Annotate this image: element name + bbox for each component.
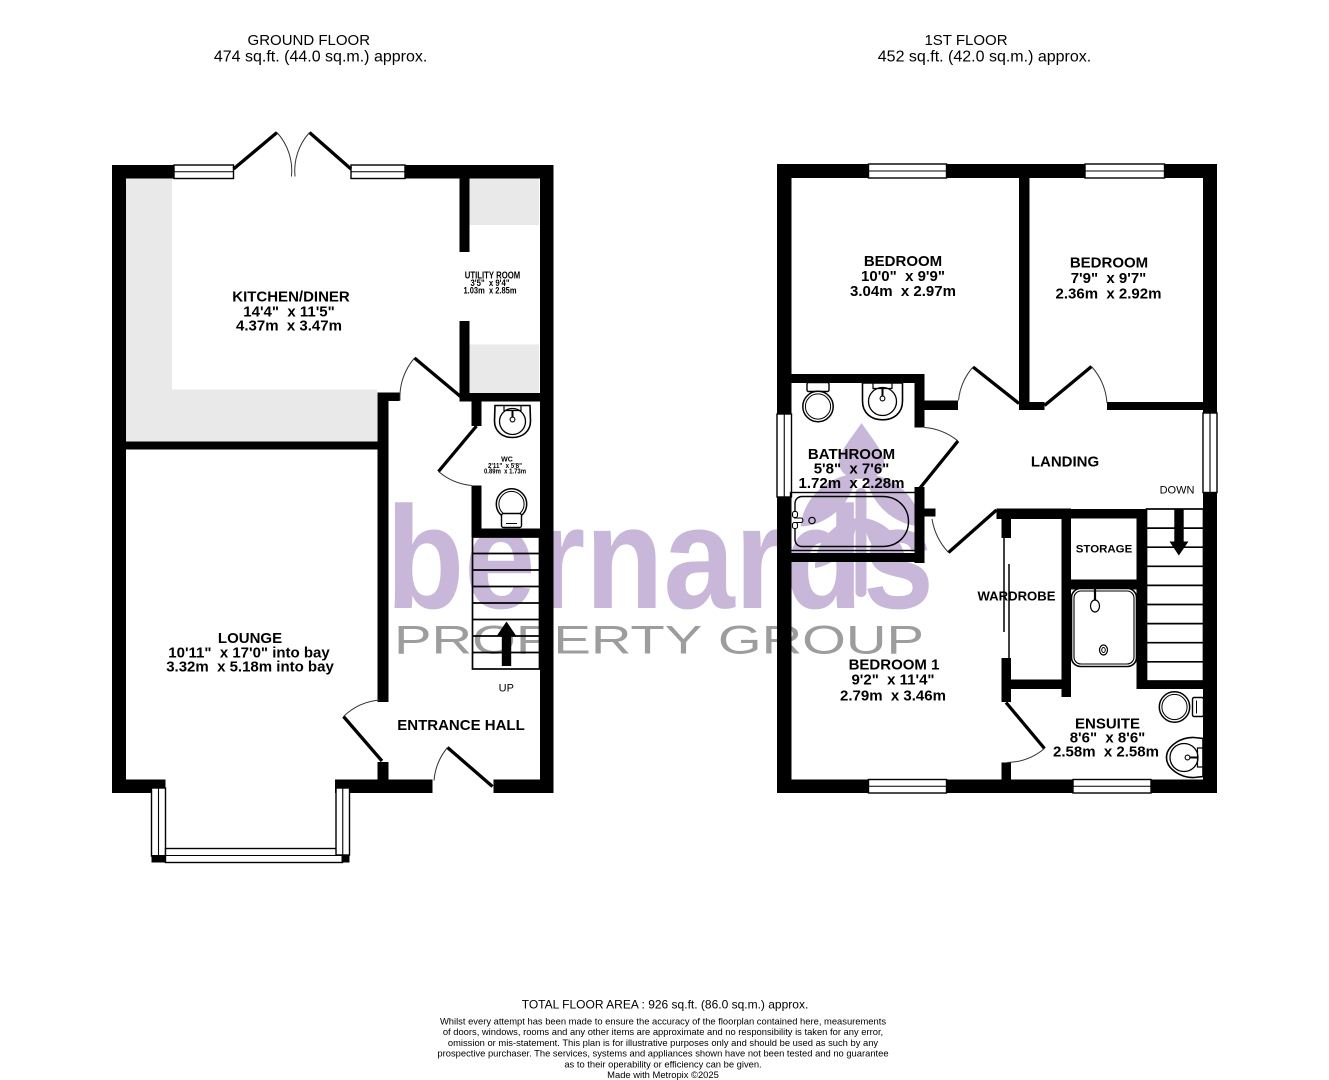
svg-text:prospective purchaser. The ser: prospective purchaser. The services, sys… <box>437 1048 888 1059</box>
svg-text:2.58m x 2.58m: 2.58m x 2.58m <box>1053 744 1159 761</box>
svg-text:9'2" x 11'4": 9'2" x 11'4" <box>851 672 934 689</box>
svg-text:2.79m x 3.46m: 2.79m x 3.46m <box>840 688 946 705</box>
svg-text:BEDROOM: BEDROOM <box>1070 255 1148 272</box>
svg-text:1.03m x 2.85m: 1.03m x 2.85m <box>464 286 517 296</box>
svg-text:LANDING: LANDING <box>1031 454 1099 471</box>
svg-text:0.89m x 1.73m: 0.89m x 1.73m <box>484 469 526 476</box>
svg-text:omission or mis-statement. Thi: omission or mis-statement. This plan is … <box>448 1037 879 1048</box>
svg-text:452 sq.ft. (42.0 sq.m.) approx: 452 sq.ft. (42.0 sq.m.) approx. <box>878 49 1091 66</box>
svg-text:2.36m x 2.92m: 2.36m x 2.92m <box>1056 286 1162 303</box>
svg-text:UP: UP <box>499 683 514 695</box>
svg-text:1ST FLOOR: 1ST FLOOR <box>924 32 1007 49</box>
svg-text:TOTAL FLOOR AREA : 926 sq.ft.: TOTAL FLOOR AREA : 926 sq.ft. (86.0 sq.m… <box>522 998 809 1012</box>
svg-text:DOWN: DOWN <box>1160 485 1195 497</box>
svg-text:Made with Metropix ©2025: Made with Metropix ©2025 <box>607 1069 719 1080</box>
svg-text:3.32m x 5.18m into bay: 3.32m x 5.18m into bay <box>166 659 334 676</box>
svg-text:PROPERTY GROUP: PROPERTY GROUP <box>394 619 924 663</box>
svg-text:GROUND FLOOR: GROUND FLOOR <box>248 32 371 49</box>
svg-text:STORAGE: STORAGE <box>1076 544 1133 556</box>
svg-text:of doors, windows, rooms and a: of doors, windows, rooms and any other i… <box>443 1026 883 1037</box>
svg-text:3.04m x 2.97m: 3.04m x 2.97m <box>850 283 956 300</box>
svg-text:7'9" x 9'7": 7'9" x 9'7" <box>1071 270 1147 287</box>
svg-text:ENTRANCE HALL: ENTRANCE HALL <box>397 717 525 734</box>
svg-text:WARDROBE: WARDROBE <box>978 590 1056 604</box>
svg-text:1.72m x 2.28m: 1.72m x 2.28m <box>799 475 905 492</box>
svg-text:Whilst every attempt has been: Whilst every attempt has been made to en… <box>440 1016 886 1027</box>
svg-text:4.37m x 3.47m: 4.37m x 3.47m <box>236 318 342 335</box>
svg-text:474 sq.ft. (44.0 sq.m.) approx: 474 sq.ft. (44.0 sq.m.) approx. <box>214 49 427 66</box>
svg-text:as to their operability or eff: as to their operability or efficiency ca… <box>564 1058 761 1069</box>
